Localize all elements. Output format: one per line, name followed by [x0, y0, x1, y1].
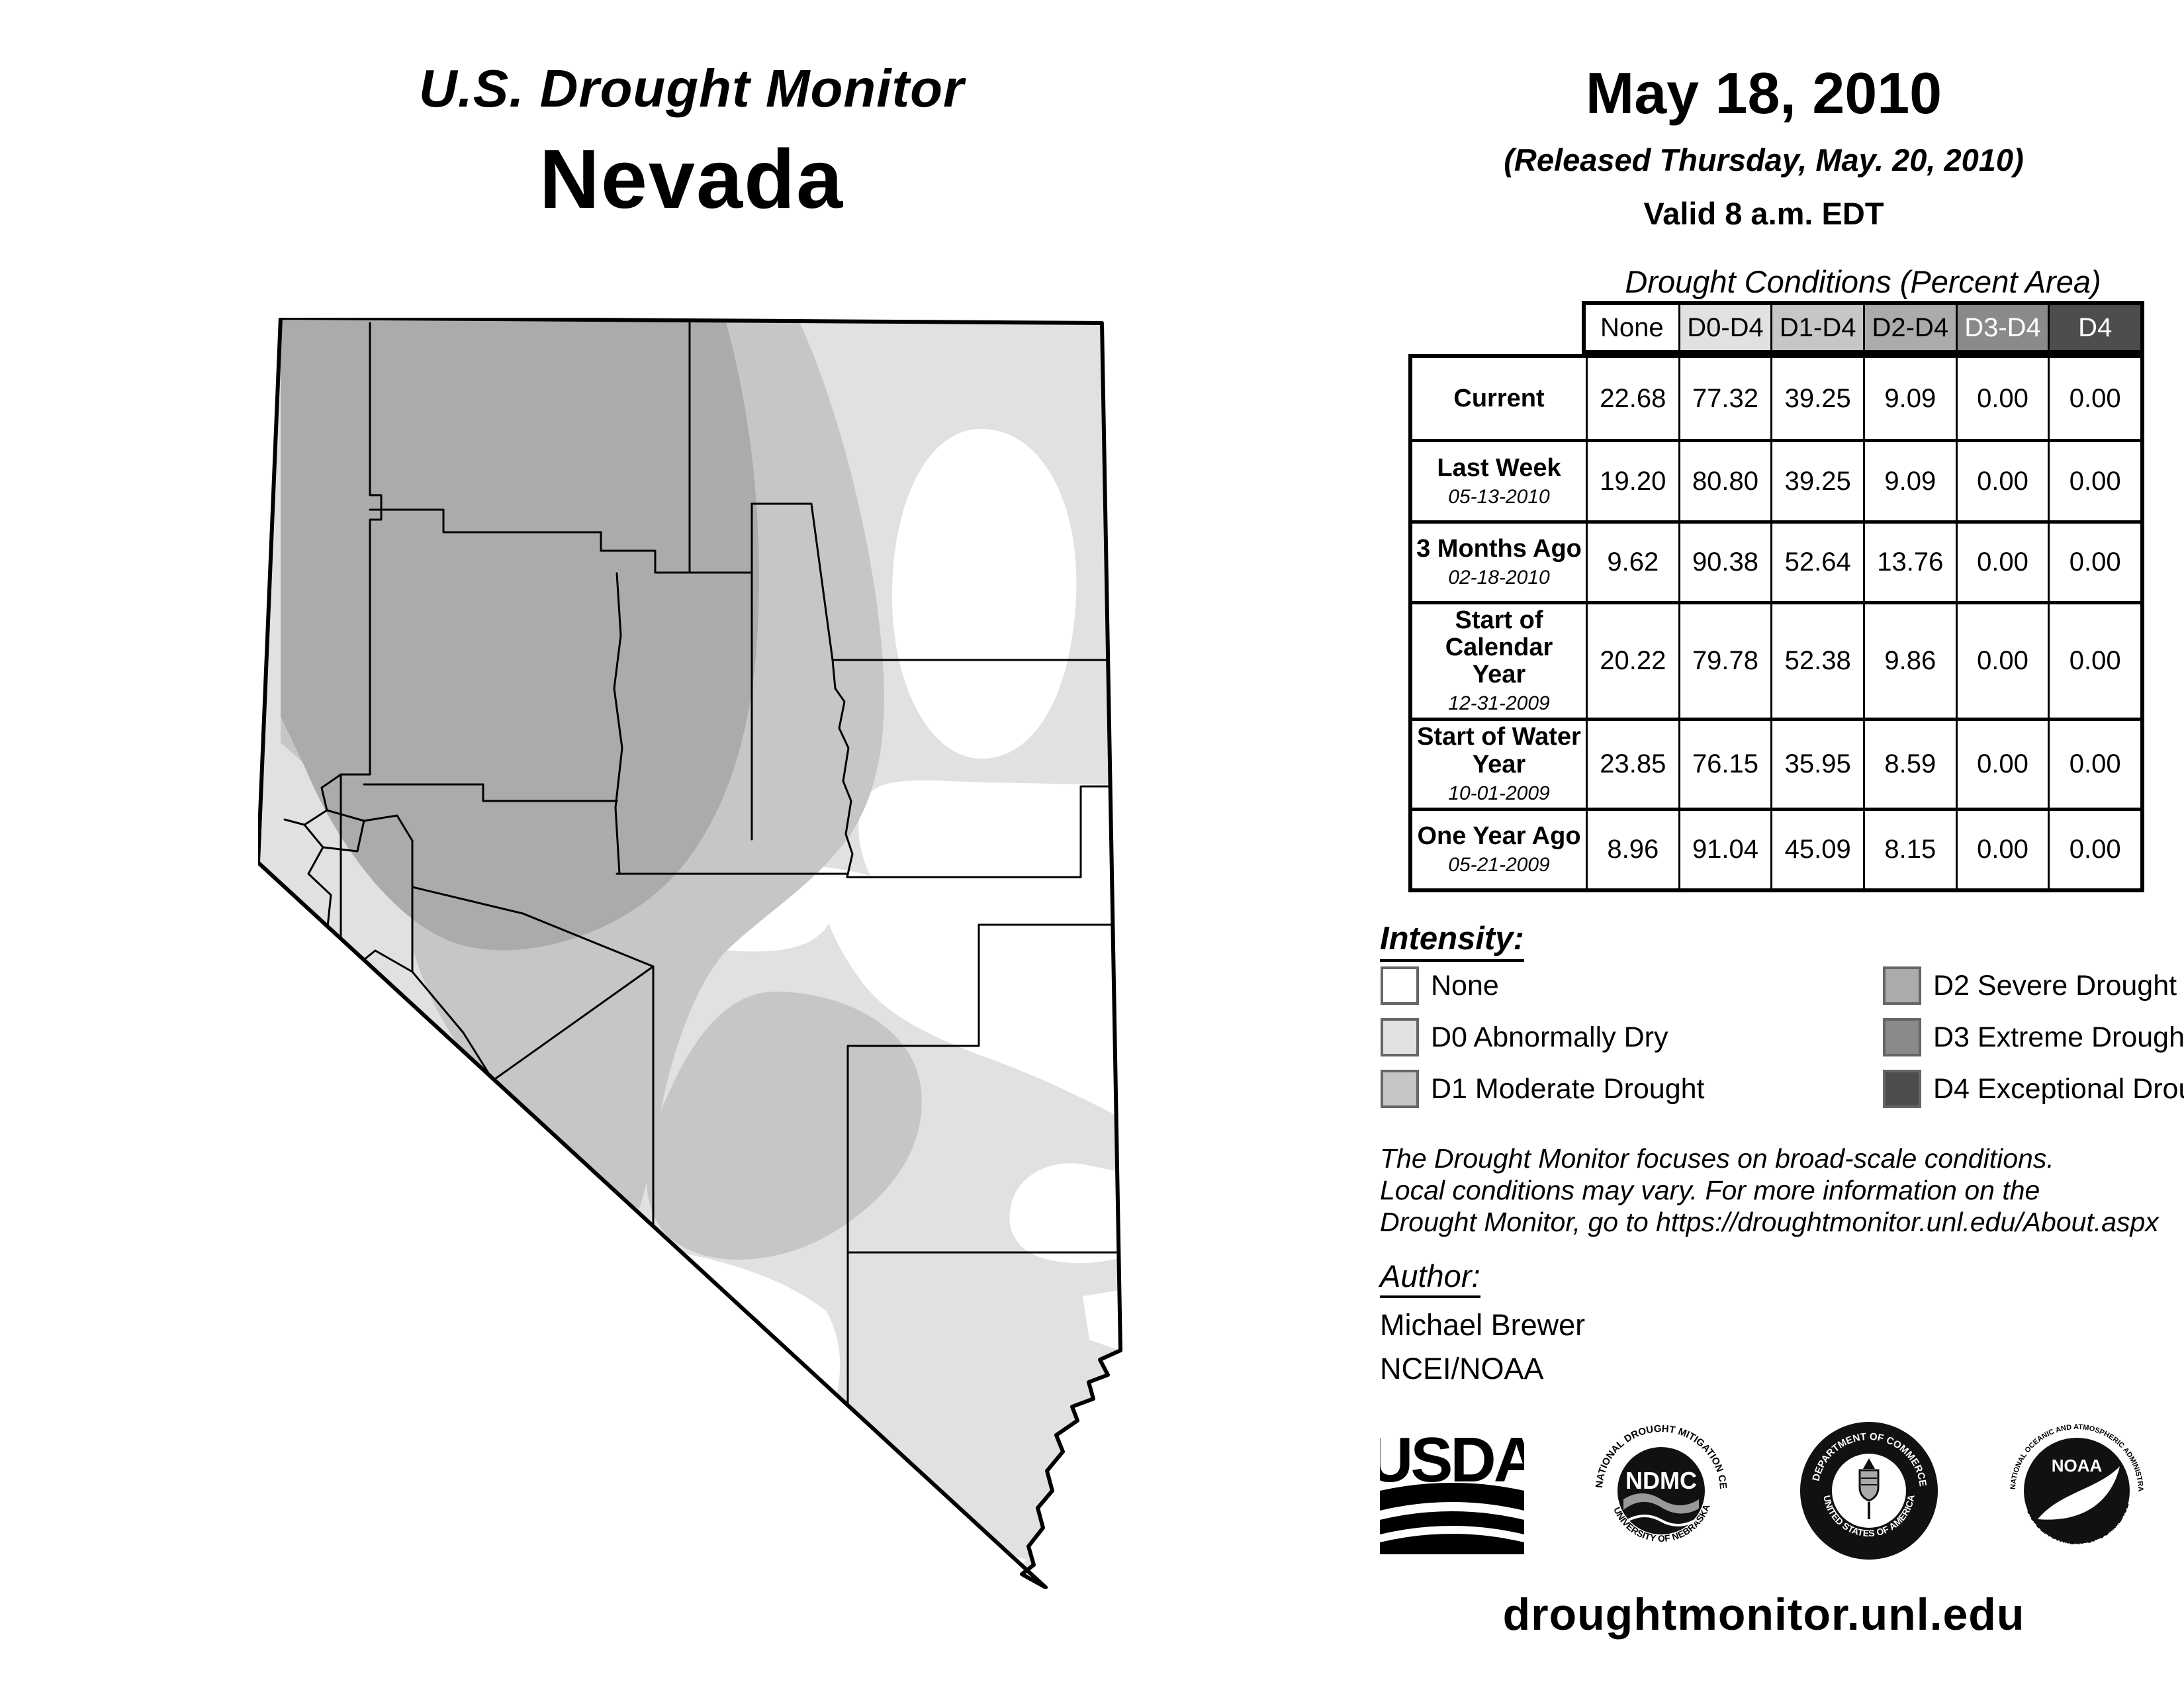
valid-time: Valid 8 a.m. EDT — [1377, 195, 2151, 232]
table-value: 0.00 — [1956, 808, 2048, 888]
table-value: 91.04 — [1678, 808, 1771, 888]
table-value: 0.00 — [1956, 439, 2048, 520]
commerce-seal-logo: DEPARTMENT OF COMMERCE UNITED STATES OF … — [1798, 1420, 1940, 1562]
disclaimer-line: The Drought Monitor focuses on broad-sca… — [1380, 1143, 2159, 1174]
col-header-d2d4: D2-D4 — [1863, 305, 1956, 350]
table-value: 8.59 — [1863, 718, 1956, 807]
release-date: (Released Thursday, May. 20, 2010) — [1377, 142, 2151, 178]
table-value: 0.00 — [1956, 520, 2048, 601]
table-header-row: None D0-D4 D1-D4 D2-D4 D3-D4 D4 — [1582, 301, 2144, 354]
table-value: 80.80 — [1678, 439, 1771, 520]
table-value: 0.00 — [1956, 601, 2048, 718]
nevada-drought-map — [258, 318, 1125, 1589]
disclaimer-line: Drought Monitor, go to https://droughtmo… — [1380, 1206, 2159, 1238]
date-block: May 18, 2010 (Released Thursday, May. 20… — [1377, 60, 2151, 232]
table-value: 76.15 — [1678, 718, 1771, 807]
table-value: 0.00 — [1956, 718, 2048, 807]
table-value: 0.00 — [2048, 601, 2140, 718]
state-name: Nevada — [258, 131, 1125, 227]
agency-logos: USDA NATIONAL DROUGHT MITIGATION CENTER … — [1380, 1425, 2148, 1557]
col-header-d1d4: D1-D4 — [1770, 305, 1863, 350]
legend-swatch-d3 — [1883, 1018, 1921, 1056]
table-value: 0.00 — [2048, 358, 2140, 439]
table-title: Drought Conditions (Percent Area) — [1582, 263, 2144, 300]
col-header-none: None — [1586, 305, 1678, 350]
table-value: 9.09 — [1863, 439, 1956, 520]
usda-logo: USDA — [1380, 1427, 1524, 1554]
table-value: 52.38 — [1770, 601, 1863, 718]
legend-swatch-d1 — [1381, 1070, 1419, 1108]
table-value: 0.00 — [2048, 520, 2140, 601]
disclaimer-line: Local conditions may vary. For more info… — [1380, 1174, 2159, 1206]
legend-label-d0: D0 Abnormally Dry — [1431, 1018, 1668, 1056]
table-value: 39.25 — [1770, 439, 1863, 520]
legend-swatch-d4 — [1883, 1070, 1921, 1108]
table-value: 0.00 — [1956, 358, 2048, 439]
drought-conditions-table: None D0-D4 D1-D4 D2-D4 D3-D4 D4 Current … — [1408, 301, 2144, 892]
table-value: 20.22 — [1586, 601, 1678, 718]
row-label: Start of Calendar Year12-31-2009 — [1412, 601, 1586, 718]
report-title: U.S. Drought Monitor — [258, 58, 1125, 119]
legend-swatch-none — [1381, 966, 1419, 1005]
author-heading: Author: — [1380, 1258, 1480, 1294]
legend-label-d4: D4 Exceptional Drought — [1933, 1070, 2184, 1108]
table-value: 23.85 — [1586, 718, 1678, 807]
table-value: 9.09 — [1863, 358, 1956, 439]
map-date: May 18, 2010 — [1377, 60, 2151, 127]
legend-label-d1: D1 Moderate Drought — [1431, 1070, 1705, 1108]
table-value: 52.64 — [1770, 520, 1863, 601]
table-value: 8.15 — [1863, 808, 1956, 888]
col-header-d0d4: D0-D4 — [1678, 305, 1771, 350]
noaa-logo: NATIONAL OCEANIC AND ATMOSPHERIC ADMINIS… — [2006, 1420, 2148, 1562]
author-organization: NCEI/NOAA — [1380, 1352, 1544, 1386]
svg-text:NOAA: NOAA — [2052, 1456, 2103, 1476]
row-label: One Year Ago05-21-2009 — [1412, 808, 1586, 888]
disclaimer-text: The Drought Monitor focuses on broad-sca… — [1380, 1143, 2159, 1238]
legend-label-d2: D2 Severe Drought — [1933, 966, 2177, 1005]
table-value: 45.09 — [1770, 808, 1863, 888]
table-value: 9.86 — [1863, 601, 1956, 718]
legend-swatch-d0 — [1381, 1018, 1419, 1056]
table-value: 13.76 — [1863, 520, 1956, 601]
legend-label-none: None — [1431, 966, 1499, 1005]
row-label: Last Week05-13-2010 — [1412, 439, 1586, 520]
table-value: 0.00 — [2048, 808, 2140, 888]
table-value: 22.68 — [1586, 358, 1678, 439]
row-label: 3 Months Ago02-18-2010 — [1412, 520, 1586, 601]
table-value: 8.96 — [1586, 808, 1678, 888]
table-value: 0.00 — [2048, 718, 2140, 807]
table-value: 0.00 — [2048, 439, 2140, 520]
table-value: 77.32 — [1678, 358, 1771, 439]
row-label: Current — [1412, 358, 1586, 439]
col-header-d3d4: D3-D4 — [1956, 305, 2048, 350]
table-value: 79.78 — [1678, 601, 1771, 718]
legend-swatch-d2 — [1883, 966, 1921, 1005]
table-value: 35.95 — [1770, 718, 1863, 807]
ndmc-logo: NATIONAL DROUGHT MITIGATION CENTER UNIVE… — [1590, 1420, 1732, 1562]
drought-monitor-report: { "header": { "title": "U.S. Drought Mon… — [0, 0, 2184, 1688]
table-body: Current 22.68 77.32 39.25 9.09 0.00 0.00… — [1408, 354, 2144, 892]
col-header-d4: D4 — [2048, 305, 2140, 350]
table-value: 90.38 — [1678, 520, 1771, 601]
row-label: Start of Water Year10-01-2009 — [1412, 718, 1586, 807]
table-value: 19.20 — [1586, 439, 1678, 520]
author-name: Michael Brewer — [1380, 1308, 1585, 1342]
legend-title: Intensity: — [1380, 920, 1524, 957]
svg-text:NDMC: NDMC — [1625, 1467, 1697, 1494]
legend-label-d3: D3 Extreme Drought — [1933, 1018, 2184, 1056]
title-block: U.S. Drought Monitor Nevada — [258, 58, 1125, 227]
table-value: 39.25 — [1770, 358, 1863, 439]
table-value: 9.62 — [1586, 520, 1678, 601]
website-url: droughtmonitor.unl.edu — [1377, 1589, 2151, 1640]
